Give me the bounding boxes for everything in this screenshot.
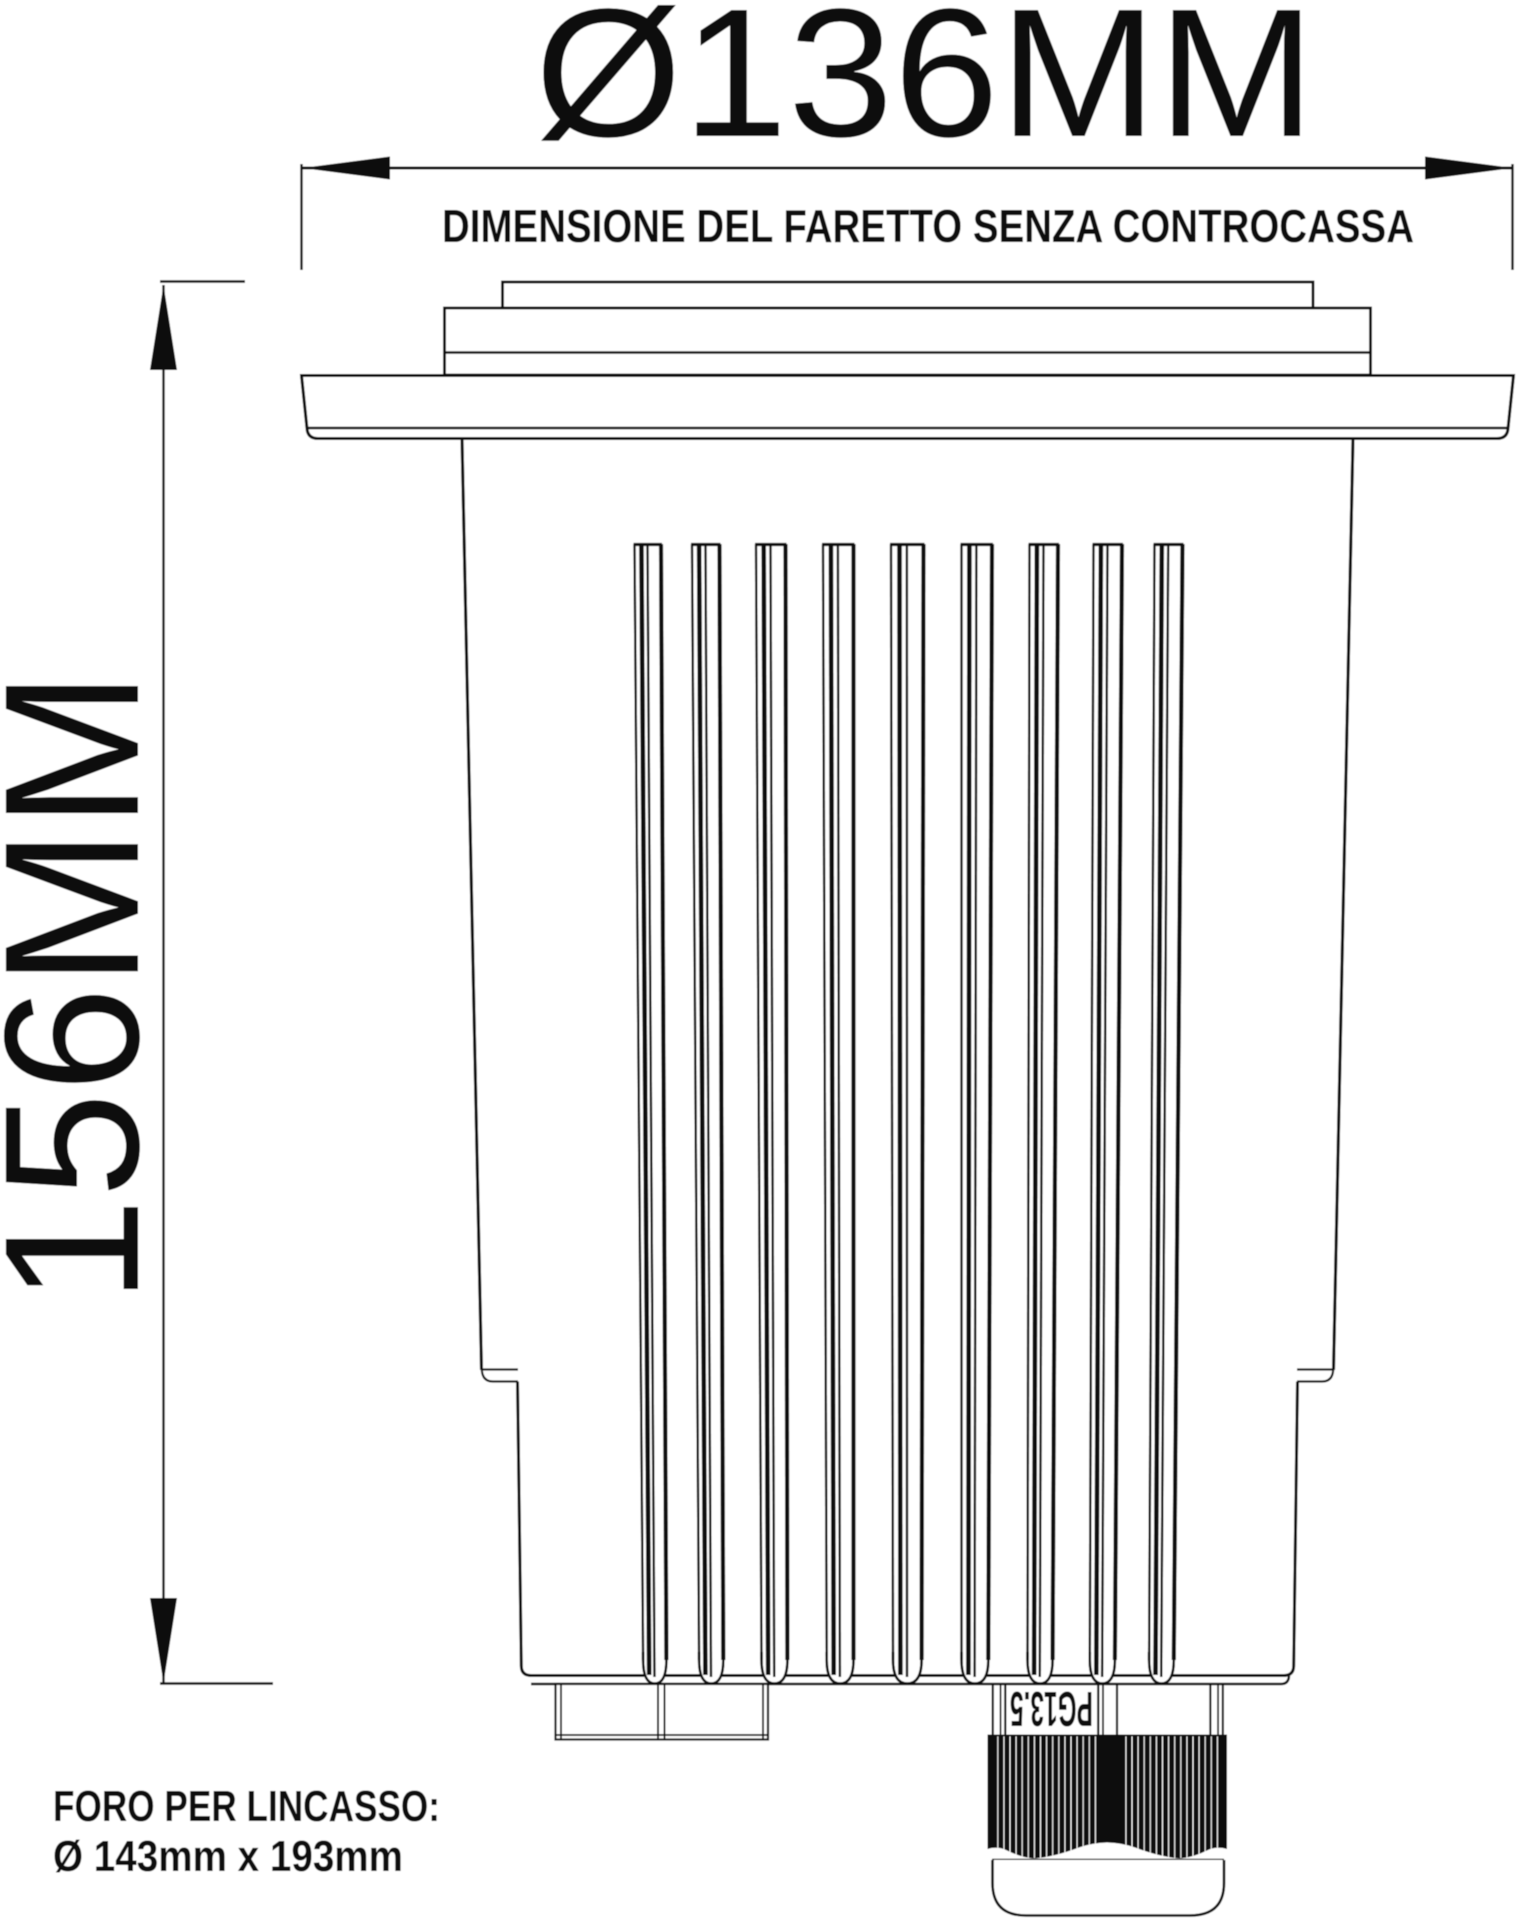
svg-text:PG13.5: PG13.5 (1010, 1681, 1093, 1735)
svg-text:Ø 143mm x 193mm: Ø 143mm x 193mm (53, 1832, 403, 1881)
svg-text:DIMENSIONE DEL FARETTO SENZA C: DIMENSIONE DEL FARETTO SENZA CONTROCASSA (442, 200, 1414, 252)
svg-text:FORO PER LINCASSO:: FORO PER LINCASSO: (53, 1782, 440, 1831)
svg-text:Ø136MM: Ø136MM (535, 0, 1316, 175)
svg-text:156MM: 156MM (0, 671, 179, 1304)
